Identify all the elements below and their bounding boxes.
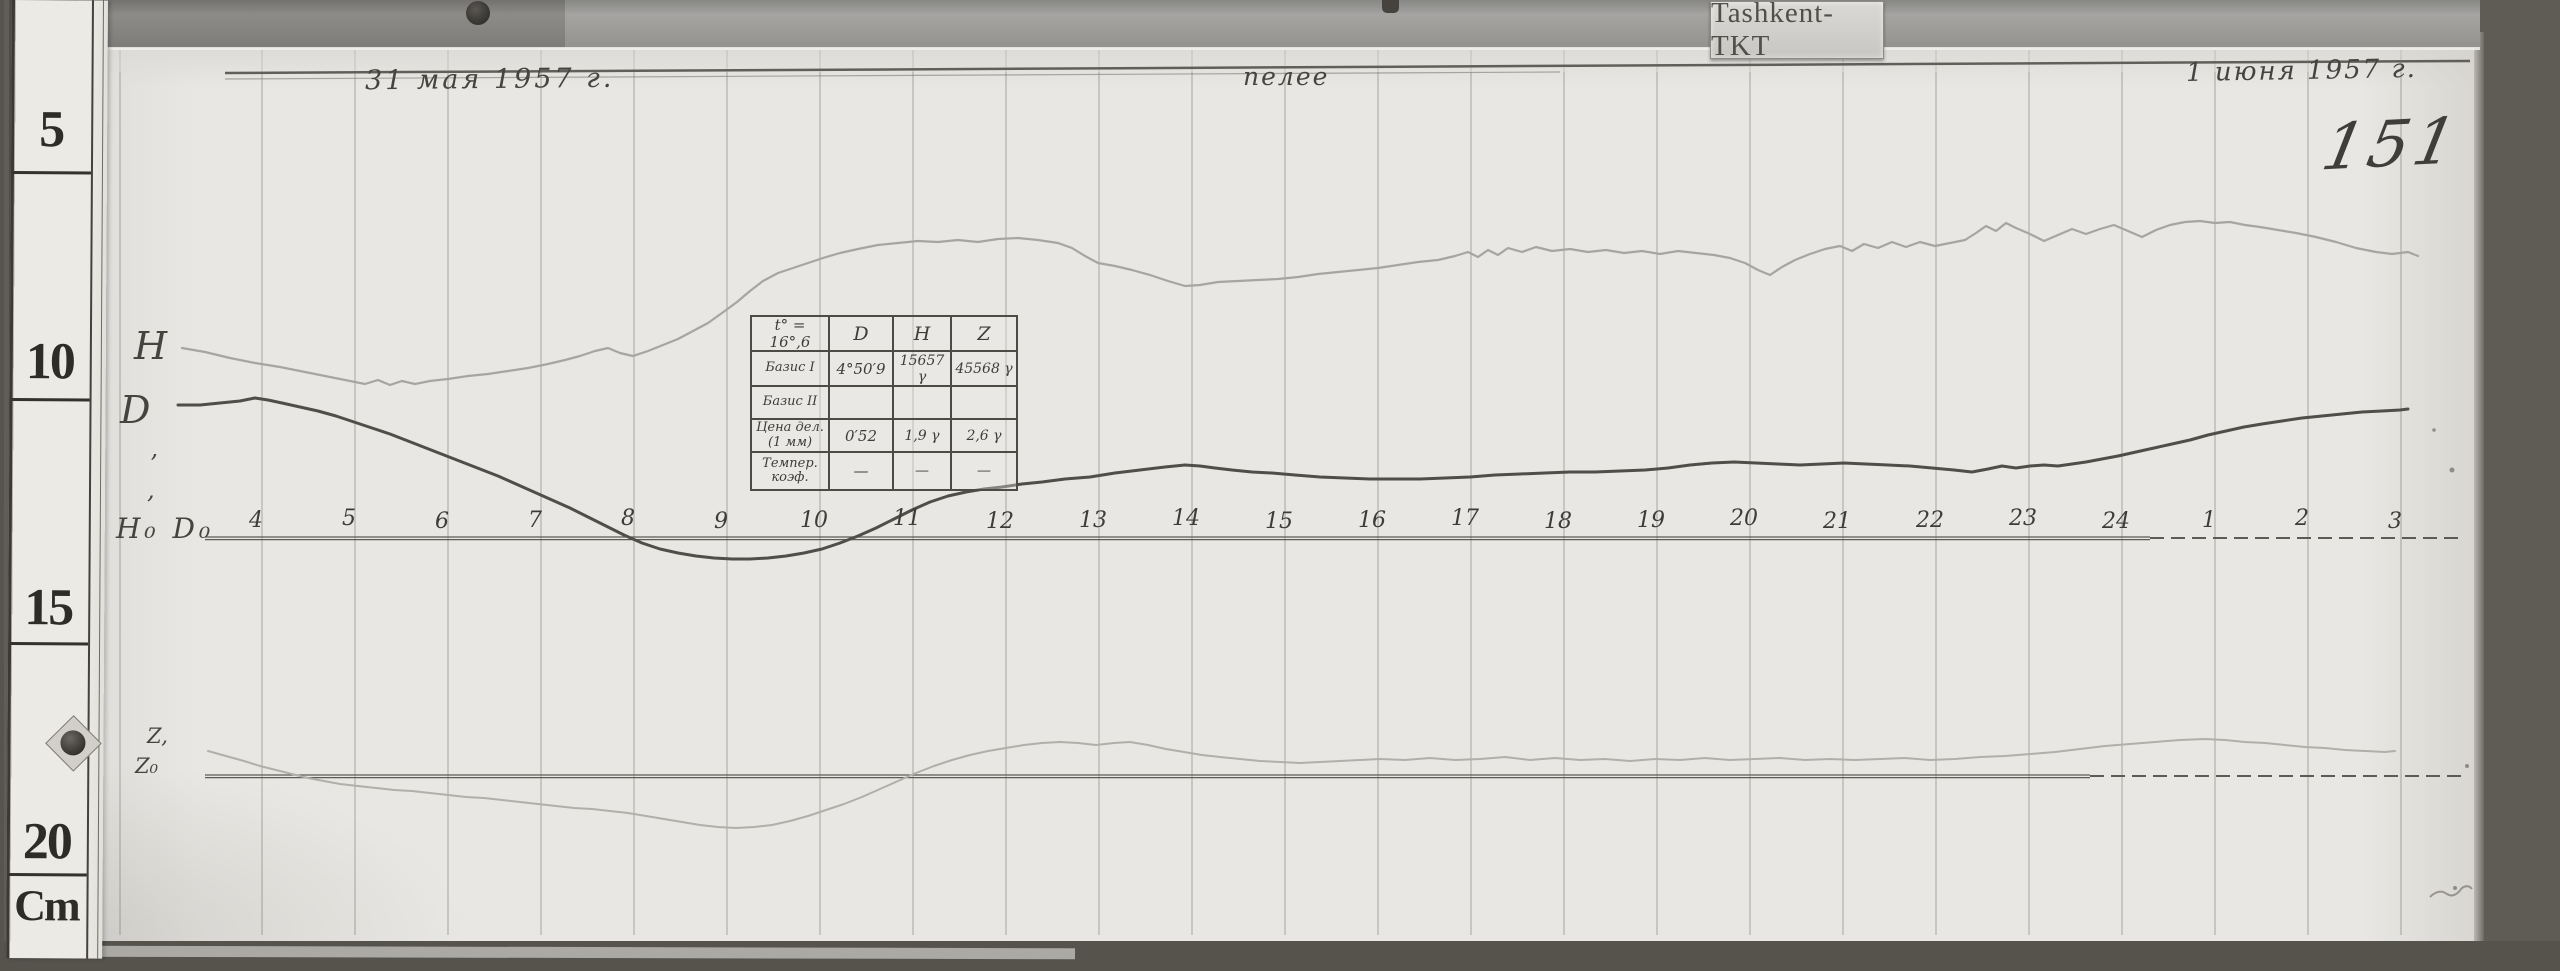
axis-hour-label: 11: [893, 506, 921, 531]
axis-hour-label: 15: [1265, 509, 1293, 534]
table-row-label: Базис II: [751, 386, 829, 419]
axis-hour-label: 7: [528, 508, 542, 533]
ruler-mark-label: 20: [7, 812, 87, 871]
ruler-division-line: [12, 398, 90, 401]
ruler-division-line: [13, 171, 91, 174]
trace-Z: [208, 739, 2395, 828]
sheet-number: 151: [2316, 105, 2466, 186]
chart-canvas: [0, 0, 2560, 971]
station-plate-label: Tashkent-TKT: [1711, 0, 1883, 63]
table-cell: 45568 γ: [951, 351, 1017, 386]
table-row-label: Темпер. коэф.: [751, 452, 829, 490]
ruler-right-edge-line-2: [97, 1, 104, 959]
table-row: Темпер. коэф.———: [751, 452, 1017, 490]
axis-hour-label: 19: [1637, 508, 1665, 533]
centimeter-ruler: 5101520Cm: [6, 0, 108, 959]
table-temperature-cell: t° = 16°,6: [751, 316, 829, 351]
edge-scribble: [2430, 886, 2472, 897]
table-row: Цена дел. (1 мм)0′521,9 γ2,6 γ: [751, 419, 1017, 452]
axis-hour-label: 22: [1916, 508, 1944, 533]
dust-speck: [2432, 428, 2436, 432]
axis-hour-label: 3: [2388, 509, 2402, 534]
axis-hour-label: 17: [1451, 506, 1479, 531]
axis-hour-label: 14: [1172, 506, 1200, 531]
axis-hour-label: 13: [1079, 508, 1107, 533]
trace-H: [182, 221, 2418, 385]
ruler-division-line: [10, 642, 88, 645]
axis-hour-label: 1: [2202, 508, 2216, 533]
axis-hour-label: 9: [714, 509, 728, 534]
axis-hour-label: 10: [800, 508, 828, 533]
table-cell: [951, 386, 1017, 419]
trace-label-z: Z,: [147, 724, 168, 748]
ruler-mark-label: 10: [10, 332, 90, 391]
axis-hour-label: 12: [986, 509, 1014, 534]
trace-label-h: Н: [134, 324, 167, 368]
ruler-screw-icon: [60, 730, 85, 755]
handwritten-date-right: 1 июня 1957 г.: [2186, 54, 2417, 88]
margin-mark-top: ’: [150, 450, 158, 478]
table-cell: 15657 γ: [893, 351, 951, 386]
axis-hour-label: 6: [435, 509, 449, 534]
table-cell: —: [893, 452, 951, 490]
clamp-notch: [1382, 0, 1399, 13]
ruler-mark-label: 5: [11, 100, 91, 159]
ruler-mark-label: 15: [8, 578, 88, 637]
calibration-table: t° = 16°,6DНZБазис I4°50′915657 γ45568 γ…: [750, 315, 1018, 491]
axis-hour-label: 20: [1730, 506, 1758, 531]
table-cell: [829, 386, 893, 419]
axis-hour-label: 18: [1544, 509, 1572, 534]
axis-hour-label: 2: [2295, 506, 2309, 531]
ruler-mark-label: Cm: [6, 880, 86, 931]
table-cell: [893, 386, 951, 419]
table-row-label: Базис I: [751, 351, 829, 386]
trace-label-d: D: [120, 388, 150, 432]
axis-hour-label: 24: [2102, 509, 2130, 534]
table-cell: 2,6 γ: [951, 419, 1017, 452]
axis-hour-label: 4: [249, 508, 263, 533]
table-cell: —: [829, 452, 893, 490]
table-cell: 4°50′9: [829, 351, 893, 386]
margin-mark-bottom: ,: [147, 476, 155, 504]
table-column-header: Z: [951, 316, 1017, 351]
axis-hour-label: 5: [342, 506, 356, 531]
axis-hour-label: 21: [1823, 509, 1851, 534]
table-row: Базис I4°50′915657 γ45568 γ: [751, 351, 1017, 386]
table-row: Базис II: [751, 386, 1017, 419]
dust-speck: [2453, 886, 2457, 890]
trace-D: [178, 398, 2408, 559]
top-clamp-strip: [78, 0, 2480, 48]
handwritten-date-left: 31 мая 1957 г.: [365, 63, 615, 97]
axis-hour-label: 16: [1358, 508, 1386, 533]
table-row-label: Цена дел. (1 мм): [751, 419, 829, 452]
table-cell: —: [951, 452, 1017, 490]
screw-icon: [466, 1, 490, 25]
table-column-header: Н: [893, 316, 951, 351]
paper-top-edge-highlight: [78, 47, 2480, 50]
axis-hour-label: 8: [621, 506, 635, 531]
handwritten-center-note: пелее: [1243, 62, 1329, 91]
magnetogram-photo: 31 мая 1957 г. пелее 1 июня 1957 г. 151 …: [0, 0, 2560, 971]
baseline-label-h0d0: Н₀ D₀: [116, 512, 214, 545]
table-column-header: D: [829, 316, 893, 351]
baseline-label-z0: Z₀: [135, 754, 158, 778]
dust-speck: [2465, 764, 2469, 768]
dust-speck: [2450, 468, 2455, 473]
table-cell: 0′52: [829, 419, 893, 452]
table-cell: 1,9 γ: [893, 419, 951, 452]
ruler-division-line: [9, 873, 87, 876]
station-plate: Tashkent-TKT: [1710, 1, 1884, 59]
axis-hour-label: 23: [2009, 506, 2037, 531]
